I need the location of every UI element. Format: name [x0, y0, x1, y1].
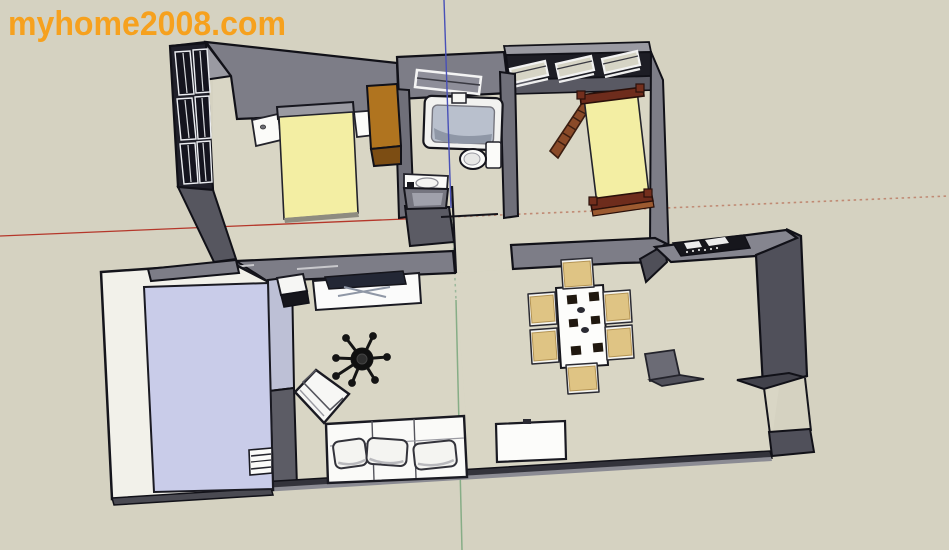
svg-text:myhome2008.com: myhome2008.com	[8, 5, 286, 43]
